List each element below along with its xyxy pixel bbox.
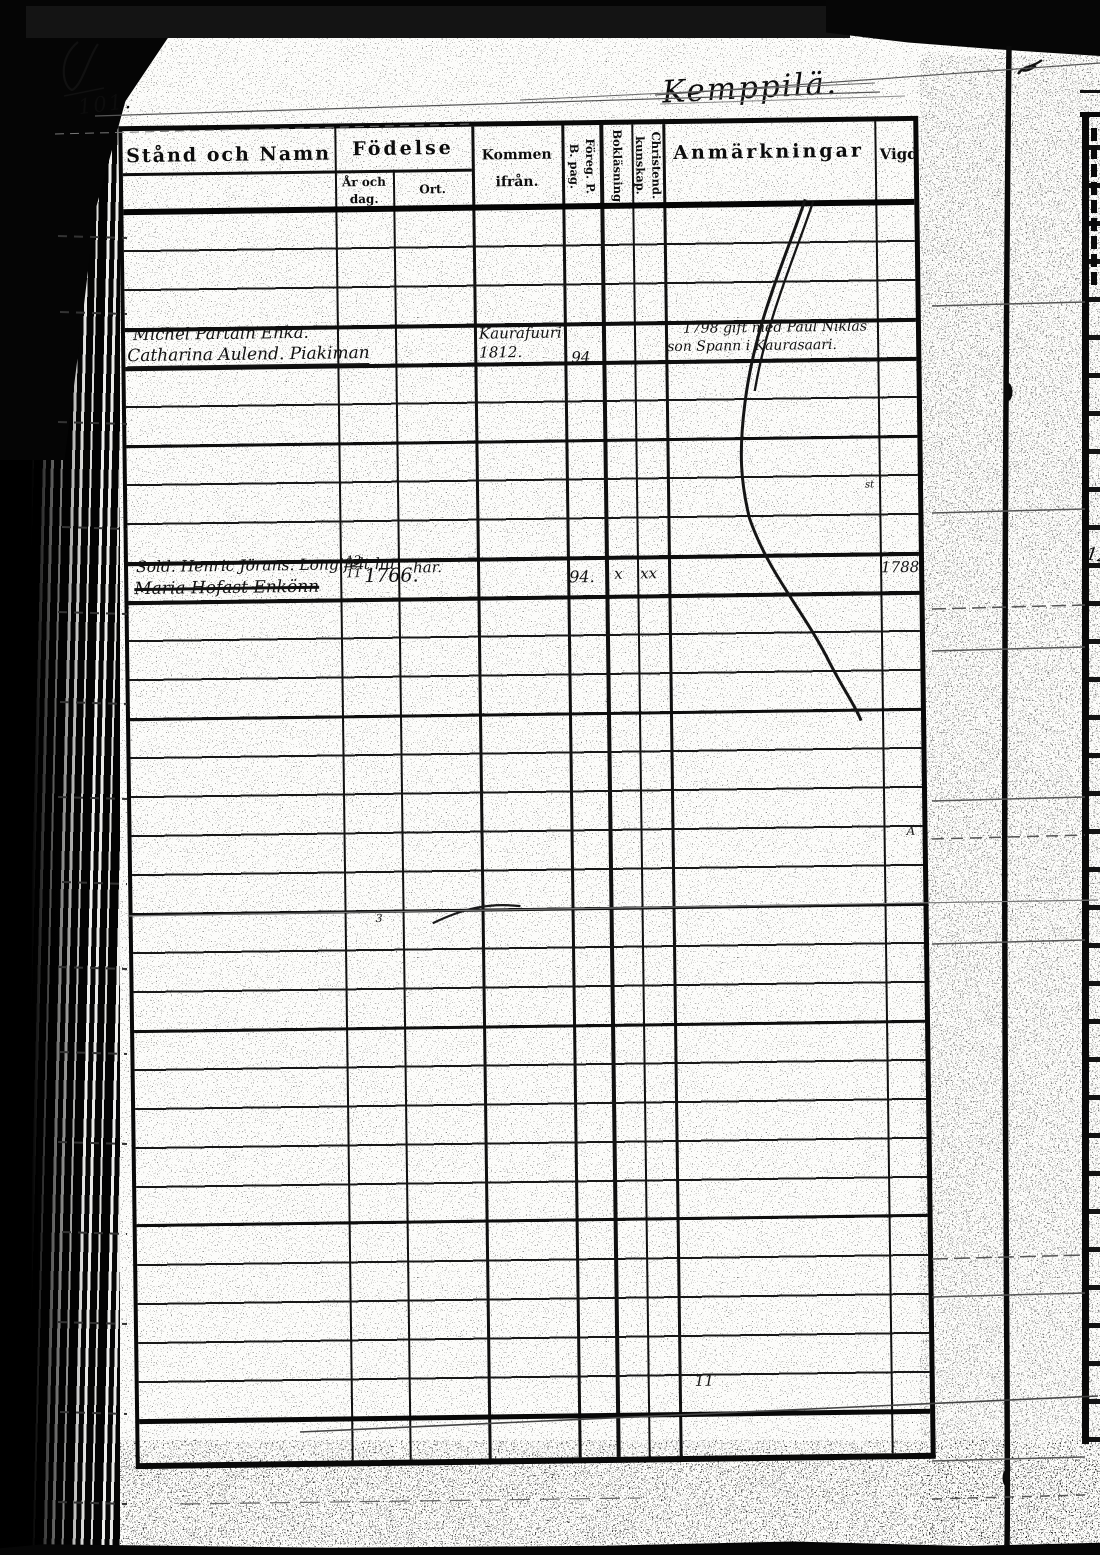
scanner-top-noise-band: [26, 6, 850, 38]
parish-register-table: Stånd och Namn Födelse År och dag. Ort. …: [118, 116, 936, 1469]
remarks-column-pen-curve: [122, 121, 940, 1474]
next-page-top-line: [1080, 90, 1100, 93]
next-page-table-edge: [1082, 112, 1100, 1444]
next-page-clipped-header-text: [1091, 128, 1097, 290]
scanned-parish-register-page: 12 101. Kemppilä. Stånd och Namn Födelse…: [0, 0, 1100, 1555]
next-page-handwriting-fragment: 12: [1085, 544, 1100, 568]
